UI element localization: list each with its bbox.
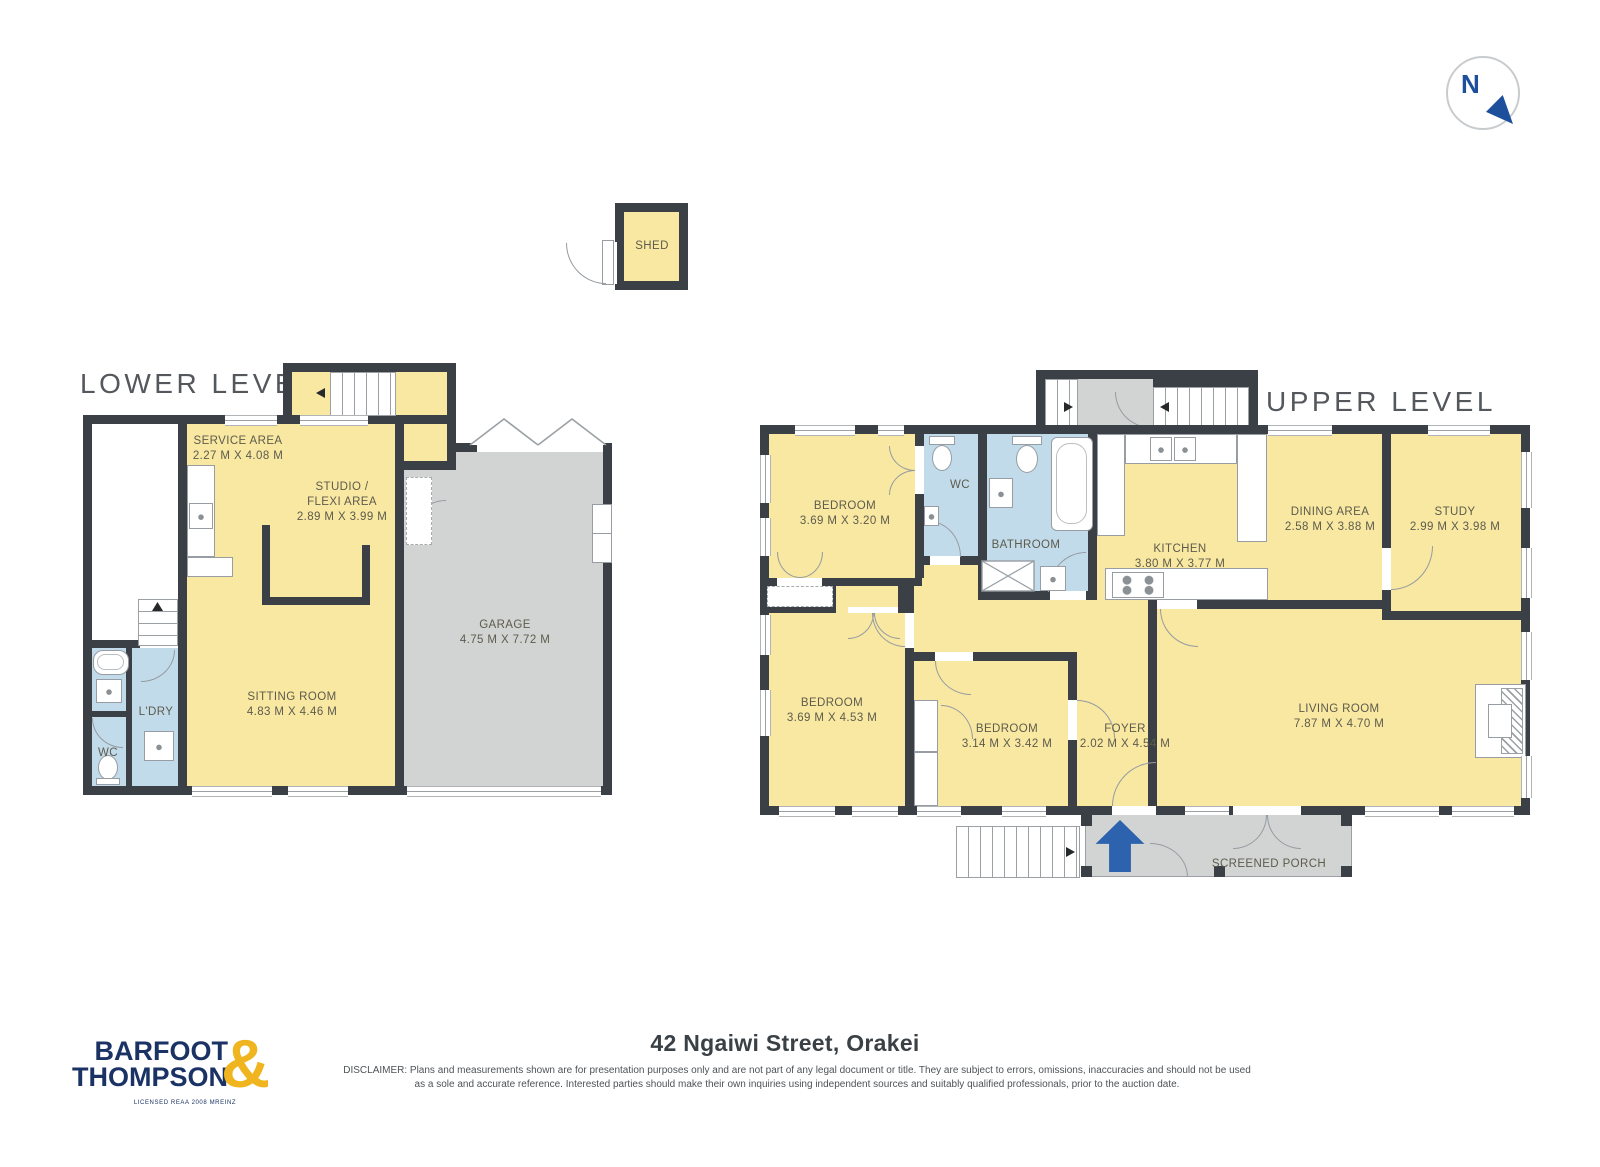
bathtub-inner — [1056, 443, 1087, 524]
bathroom-sink — [989, 478, 1013, 508]
toilet-tank — [96, 778, 120, 785]
garage-label: GARAGE 4.75 M X 7.72 M — [445, 618, 565, 648]
door-opening — [1382, 548, 1391, 590]
window — [288, 786, 348, 797]
window — [1521, 756, 1532, 798]
stove — [1112, 572, 1164, 598]
wall — [1382, 611, 1530, 620]
fireplace-box — [1488, 704, 1512, 738]
lower-stairs — [330, 372, 396, 416]
floor-plan-page: N SHED LOWER LEVEL — [0, 0, 1600, 1167]
garage-shelf — [592, 504, 612, 534]
window — [917, 806, 961, 817]
wall — [262, 525, 270, 605]
logo-line1: BARFOOT — [70, 1038, 228, 1064]
studio-bump-area — [404, 424, 447, 461]
wall — [760, 607, 836, 613]
wall — [83, 640, 140, 648]
studio-label: STUDIO / FLEXI AREA 2.89 M X 3.99 M — [282, 480, 402, 525]
wall — [905, 585, 914, 613]
window — [1365, 806, 1439, 817]
shed-door-arc — [566, 243, 606, 284]
wardrobe-opening — [777, 578, 822, 586]
wall — [262, 597, 370, 605]
wall — [404, 461, 456, 470]
kitchen-counter — [187, 557, 233, 577]
bedroom-label: BEDROOM 3.69 M X 3.20 M — [785, 499, 905, 529]
window — [1521, 632, 1532, 680]
window — [1002, 806, 1046, 817]
wc-sink — [924, 506, 939, 526]
wall — [915, 434, 924, 446]
window — [1521, 452, 1532, 508]
wall — [178, 415, 187, 786]
wall — [905, 648, 914, 806]
front-door-opening — [1112, 806, 1156, 815]
bedroom-label: BEDROOM 3.69 M X 4.53 M — [772, 696, 892, 726]
address-title: 42 Ngaiwi Street, Orakei — [385, 1030, 1185, 1057]
kitchen-sink — [1174, 437, 1196, 461]
window — [1521, 548, 1532, 598]
door-opening — [915, 446, 924, 494]
window — [760, 690, 771, 736]
logo-ampersand: & — [221, 1033, 270, 1095]
window — [1452, 806, 1514, 817]
porch-label: SCREENED PORCH — [1199, 857, 1339, 872]
logo-line2: THOMPSON — [70, 1064, 228, 1090]
bathtub — [1051, 437, 1093, 531]
window — [760, 455, 771, 503]
upper-level-title: UPPER LEVEL — [1266, 386, 1496, 418]
entry-stairs — [956, 826, 1080, 878]
door-opening — [930, 556, 960, 565]
wardrobe — [767, 586, 833, 607]
bathroom-label: BATHROOM — [966, 538, 1086, 553]
door-opening — [935, 652, 973, 661]
disclaimer-line1: DISCLAIMER: Plans and measurements shown… — [322, 1064, 1272, 1078]
window — [760, 518, 771, 556]
garage-closet — [406, 477, 432, 545]
garage-door-chevrons-icon — [468, 416, 608, 446]
toilet-bowl — [1016, 445, 1038, 473]
shed-label: SHED — [612, 239, 692, 254]
sitting-room-label: SITTING ROOM 4.83 M X 4.46 M — [232, 690, 352, 720]
foyer-label: FOYER 2.02 M X 4.54 M — [1065, 722, 1185, 752]
porch-door-opening — [1233, 806, 1301, 815]
porch-post — [1341, 866, 1352, 877]
window — [225, 415, 277, 426]
living-room-label: LIVING ROOM 7.87 M X 4.70 M — [1269, 702, 1409, 732]
bathtub-inner — [97, 654, 124, 670]
bathroom-sink — [1040, 566, 1066, 591]
wall — [915, 494, 924, 578]
bathroom-sink — [96, 679, 122, 703]
window — [795, 425, 855, 436]
door-opening — [1050, 591, 1086, 600]
porch-post — [1341, 815, 1352, 826]
closet — [914, 700, 938, 752]
wall — [1153, 379, 1249, 387]
counter-sink — [189, 503, 213, 529]
door-opening — [905, 613, 914, 648]
kitchen-label: KITCHEN 3.80 M X 3.77 M — [1110, 542, 1250, 572]
garage-shelf — [592, 533, 612, 563]
window — [852, 806, 898, 817]
lower-level-title: LOWER LEVEL — [80, 368, 316, 400]
shower — [981, 560, 1035, 592]
wall — [362, 545, 370, 605]
wc-label: WC — [88, 746, 128, 761]
study-label: STUDY 2.99 M X 3.98 M — [1385, 505, 1525, 535]
logo-tagline: LICENSED REAA 2008 MREINZ — [130, 1100, 240, 1106]
closet — [914, 752, 938, 806]
kitchen-sink — [1150, 437, 1172, 461]
window — [1268, 425, 1332, 436]
laundry-label: L'DRY — [126, 705, 186, 720]
porch-post — [1081, 866, 1092, 877]
compass-north-label: N — [1461, 69, 1480, 100]
toilet-tank — [929, 436, 955, 445]
window — [1428, 425, 1490, 436]
garage-door-opening — [407, 786, 601, 797]
window — [192, 786, 272, 797]
window — [878, 425, 904, 436]
kitchen-counter — [1097, 434, 1125, 536]
bathtub — [93, 650, 129, 675]
door-opening — [1157, 600, 1197, 609]
porch-post — [1081, 815, 1092, 826]
toilet-bowl — [932, 445, 952, 471]
window — [779, 806, 835, 817]
lower-main-room-area — [187, 424, 395, 786]
window — [760, 615, 771, 655]
window — [300, 415, 368, 426]
bedroom-label: BEDROOM 3.14 M X 3.42 M — [947, 722, 1067, 752]
agency-logo: BARFOOT THOMPSON — [70, 1038, 228, 1090]
dining-label: DINING AREA 2.58 M X 3.88 M — [1260, 505, 1400, 535]
toilet-tank — [1012, 436, 1042, 445]
washing-machine — [144, 731, 174, 761]
disclaimer-line2: as a sole and accurate reference. Intere… — [322, 1078, 1272, 1092]
wc-label: WC — [940, 478, 980, 493]
service-area-label: SERVICE AREA 2.27 M X 4.08 M — [178, 434, 298, 464]
